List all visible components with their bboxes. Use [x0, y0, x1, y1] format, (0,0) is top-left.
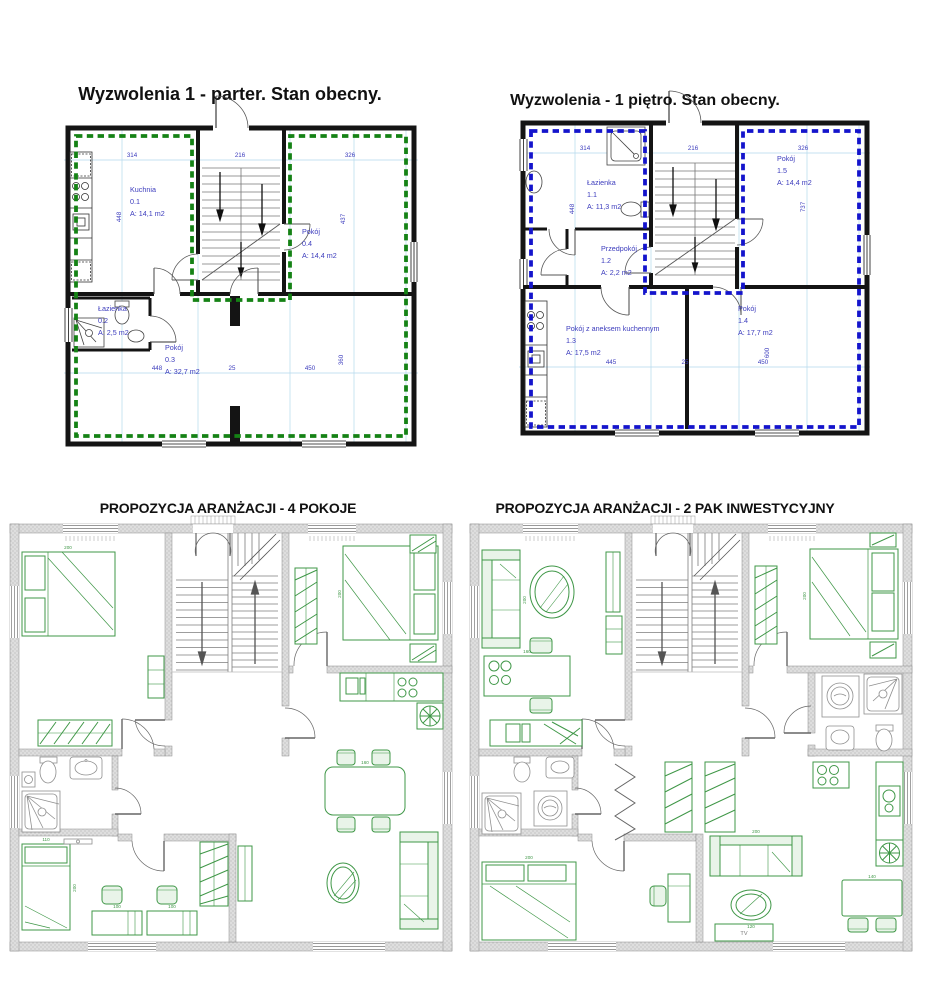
svg-text:448: 448 — [116, 211, 123, 222]
svg-text:448: 448 — [152, 365, 163, 372]
curtain-marks — [66, 536, 354, 541]
svg-text:A: 11,3 m2: A: 11,3 m2 — [587, 202, 621, 211]
svg-text:200: 200 — [802, 592, 807, 600]
svg-text:450: 450 — [305, 365, 316, 372]
kitchen-counter-bottom — [490, 720, 582, 746]
shelf-unit — [148, 656, 164, 698]
sofa-top-left — [482, 550, 520, 648]
svg-text:100: 100 — [168, 904, 176, 909]
wardrobe-bottom — [200, 842, 228, 906]
bathroom-fixtures-right — [822, 674, 902, 751]
tv-label: TV — [740, 931, 747, 937]
dining-table — [842, 880, 902, 932]
bathroom-fixtures-left — [482, 757, 574, 834]
svg-text:1.2: 1.2 — [601, 256, 611, 265]
svg-text:140: 140 — [868, 874, 876, 879]
title-proposal-4pokoje: PROPOZYCJA ARANŻACJI - 4 POKOJE — [100, 500, 356, 516]
tv-panel — [238, 846, 252, 901]
svg-text:216: 216 — [688, 145, 699, 152]
svg-text:A: 14,4 m2: A: 14,4 m2 — [777, 178, 812, 187]
plan-proposal-4pokoje: 200 200 110 200 100 100 160 — [10, 524, 452, 951]
label-przedpokoj: Przedpokój — [601, 244, 637, 253]
sofa-bottom-right — [710, 836, 802, 876]
label-lazienka-11: Łazienka — [587, 178, 616, 187]
svg-text:600: 600 — [764, 347, 771, 358]
svg-text:450: 450 — [758, 359, 769, 366]
armchair-oval — [327, 863, 359, 903]
svg-text:A: 2,5 m2: A: 2,5 m2 — [98, 328, 129, 337]
svg-text:0.1: 0.1 — [130, 197, 140, 206]
double-bed-right — [810, 549, 898, 639]
svg-text:326: 326 — [345, 152, 356, 159]
svg-text:0.2: 0.2 — [98, 316, 108, 325]
svg-text:0.4: 0.4 — [302, 239, 312, 248]
wardrobe-right — [755, 566, 777, 644]
staircase — [655, 163, 735, 275]
svg-text:A: 32,7 m2: A: 32,7 m2 — [165, 367, 200, 376]
tv-panel-top — [606, 552, 620, 612]
entrance-door — [651, 516, 695, 556]
svg-text:448: 448 — [569, 203, 576, 214]
svg-text:A: 17,5 m2: A: 17,5 m2 — [566, 348, 601, 357]
staircase — [202, 168, 280, 280]
room-labels: Kuchnia 0.1 A: 14,1 m2 Pokój 0.4 A: 14,4… — [98, 185, 337, 376]
label-lazienka-02: Łazienka — [98, 304, 127, 313]
svg-text:314: 314 — [580, 145, 591, 152]
svg-text:160: 160 — [361, 760, 369, 765]
title-proposal-2pak: PROPOZYCJA ARANŻACJI - 2 PAK INWESTYCYJN… — [496, 500, 835, 516]
label-pokoj-15: Pokój — [777, 154, 795, 163]
coffee-table — [731, 890, 771, 920]
title-pietro: Wyzwolenia - 1 piętro. Stan obecny. — [510, 92, 780, 110]
kitchen-counter — [525, 301, 547, 427]
label-pokoj-14: Pokój — [738, 304, 756, 313]
svg-text:1.4: 1.4 — [738, 316, 748, 325]
svg-text:A: 14,4 m2: A: 14,4 m2 — [302, 251, 337, 260]
svg-text:110: 110 — [42, 837, 50, 842]
svg-text:200: 200 — [72, 884, 77, 892]
svg-text:200: 200 — [522, 596, 527, 604]
wardrobe-right — [295, 568, 317, 644]
plan-pietro: 314 216 326 445 25 450 448 737 600 Łazie… — [517, 109, 872, 440]
svg-text:216: 216 — [235, 152, 246, 159]
svg-text:A: 2,2 m2: A: 2,2 m2 — [601, 268, 632, 277]
desk-left — [92, 886, 142, 935]
curtain-marks — [526, 536, 814, 541]
svg-text:737: 737 — [800, 201, 807, 212]
svg-text:25: 25 — [682, 359, 689, 366]
double-bed-bottom — [482, 862, 576, 940]
stair-arrows — [659, 582, 719, 664]
guide-lines — [519, 123, 870, 433]
corridor-wardrobes — [665, 762, 735, 832]
oval-mirror — [530, 566, 574, 618]
shelf-unit — [606, 616, 622, 654]
label-pokoj-04: Pokój — [302, 227, 320, 236]
sofa — [400, 832, 438, 929]
staircase — [632, 533, 742, 672]
label-pokoj-13: Pokój z aneksem kuchennym — [566, 324, 659, 333]
kitchen-counter — [340, 673, 443, 729]
svg-text:326: 326 — [798, 145, 809, 152]
double-bed-right — [343, 546, 438, 640]
svg-text:200: 200 — [337, 590, 342, 598]
kitchen-hob — [813, 762, 849, 788]
desk-right — [147, 886, 197, 935]
floor-plans-sheet: Wyzwolenia 1 - parter. Stan obecny. Wyzw… — [0, 0, 937, 1000]
title-parter: Wyzwolenia 1 - parter. Stan obecny. — [78, 84, 381, 105]
svg-text:314: 314 — [127, 152, 138, 159]
bifold-doors — [615, 764, 635, 840]
svg-text:100: 100 — [113, 904, 121, 909]
svg-text:A: 14,1 m2: A: 14,1 m2 — [130, 209, 165, 218]
svg-text:445: 445 — [606, 359, 617, 366]
double-bed-left — [22, 552, 115, 636]
kitchen-counter-right — [876, 762, 903, 866]
svg-text:200: 200 — [752, 829, 760, 834]
svg-text:200: 200 — [525, 855, 533, 860]
wardrobe-left — [38, 720, 112, 746]
svg-text:1.3: 1.3 — [566, 336, 576, 345]
svg-text:120: 120 — [747, 924, 755, 929]
svg-text:1.1: 1.1 — [587, 190, 597, 199]
label-pokoj-03: Pokój — [165, 343, 183, 352]
svg-text:437: 437 — [340, 213, 347, 224]
svg-text:25: 25 — [229, 365, 236, 372]
stair-arrows — [199, 582, 259, 664]
plan-parter: 314 216 326 448 25 450 448 437 360 Kuchn… — [62, 112, 420, 450]
svg-text:200: 200 — [64, 545, 72, 550]
staircase — [172, 533, 282, 672]
single-bed — [22, 844, 70, 930]
desk — [650, 874, 690, 922]
svg-text:0.3: 0.3 — [165, 355, 175, 364]
svg-text:360: 360 — [338, 354, 345, 365]
plan-proposal-2pak: 200 200 200 200 120 140 160 TV — [470, 524, 912, 951]
label-kuchnia: Kuchnia — [130, 185, 156, 194]
kitchen-counter — [70, 152, 92, 282]
svg-text:1.5: 1.5 — [777, 166, 787, 175]
svg-text:A: 17,7 m2: A: 17,7 m2 — [738, 328, 773, 337]
svg-text:160: 160 — [523, 649, 531, 654]
